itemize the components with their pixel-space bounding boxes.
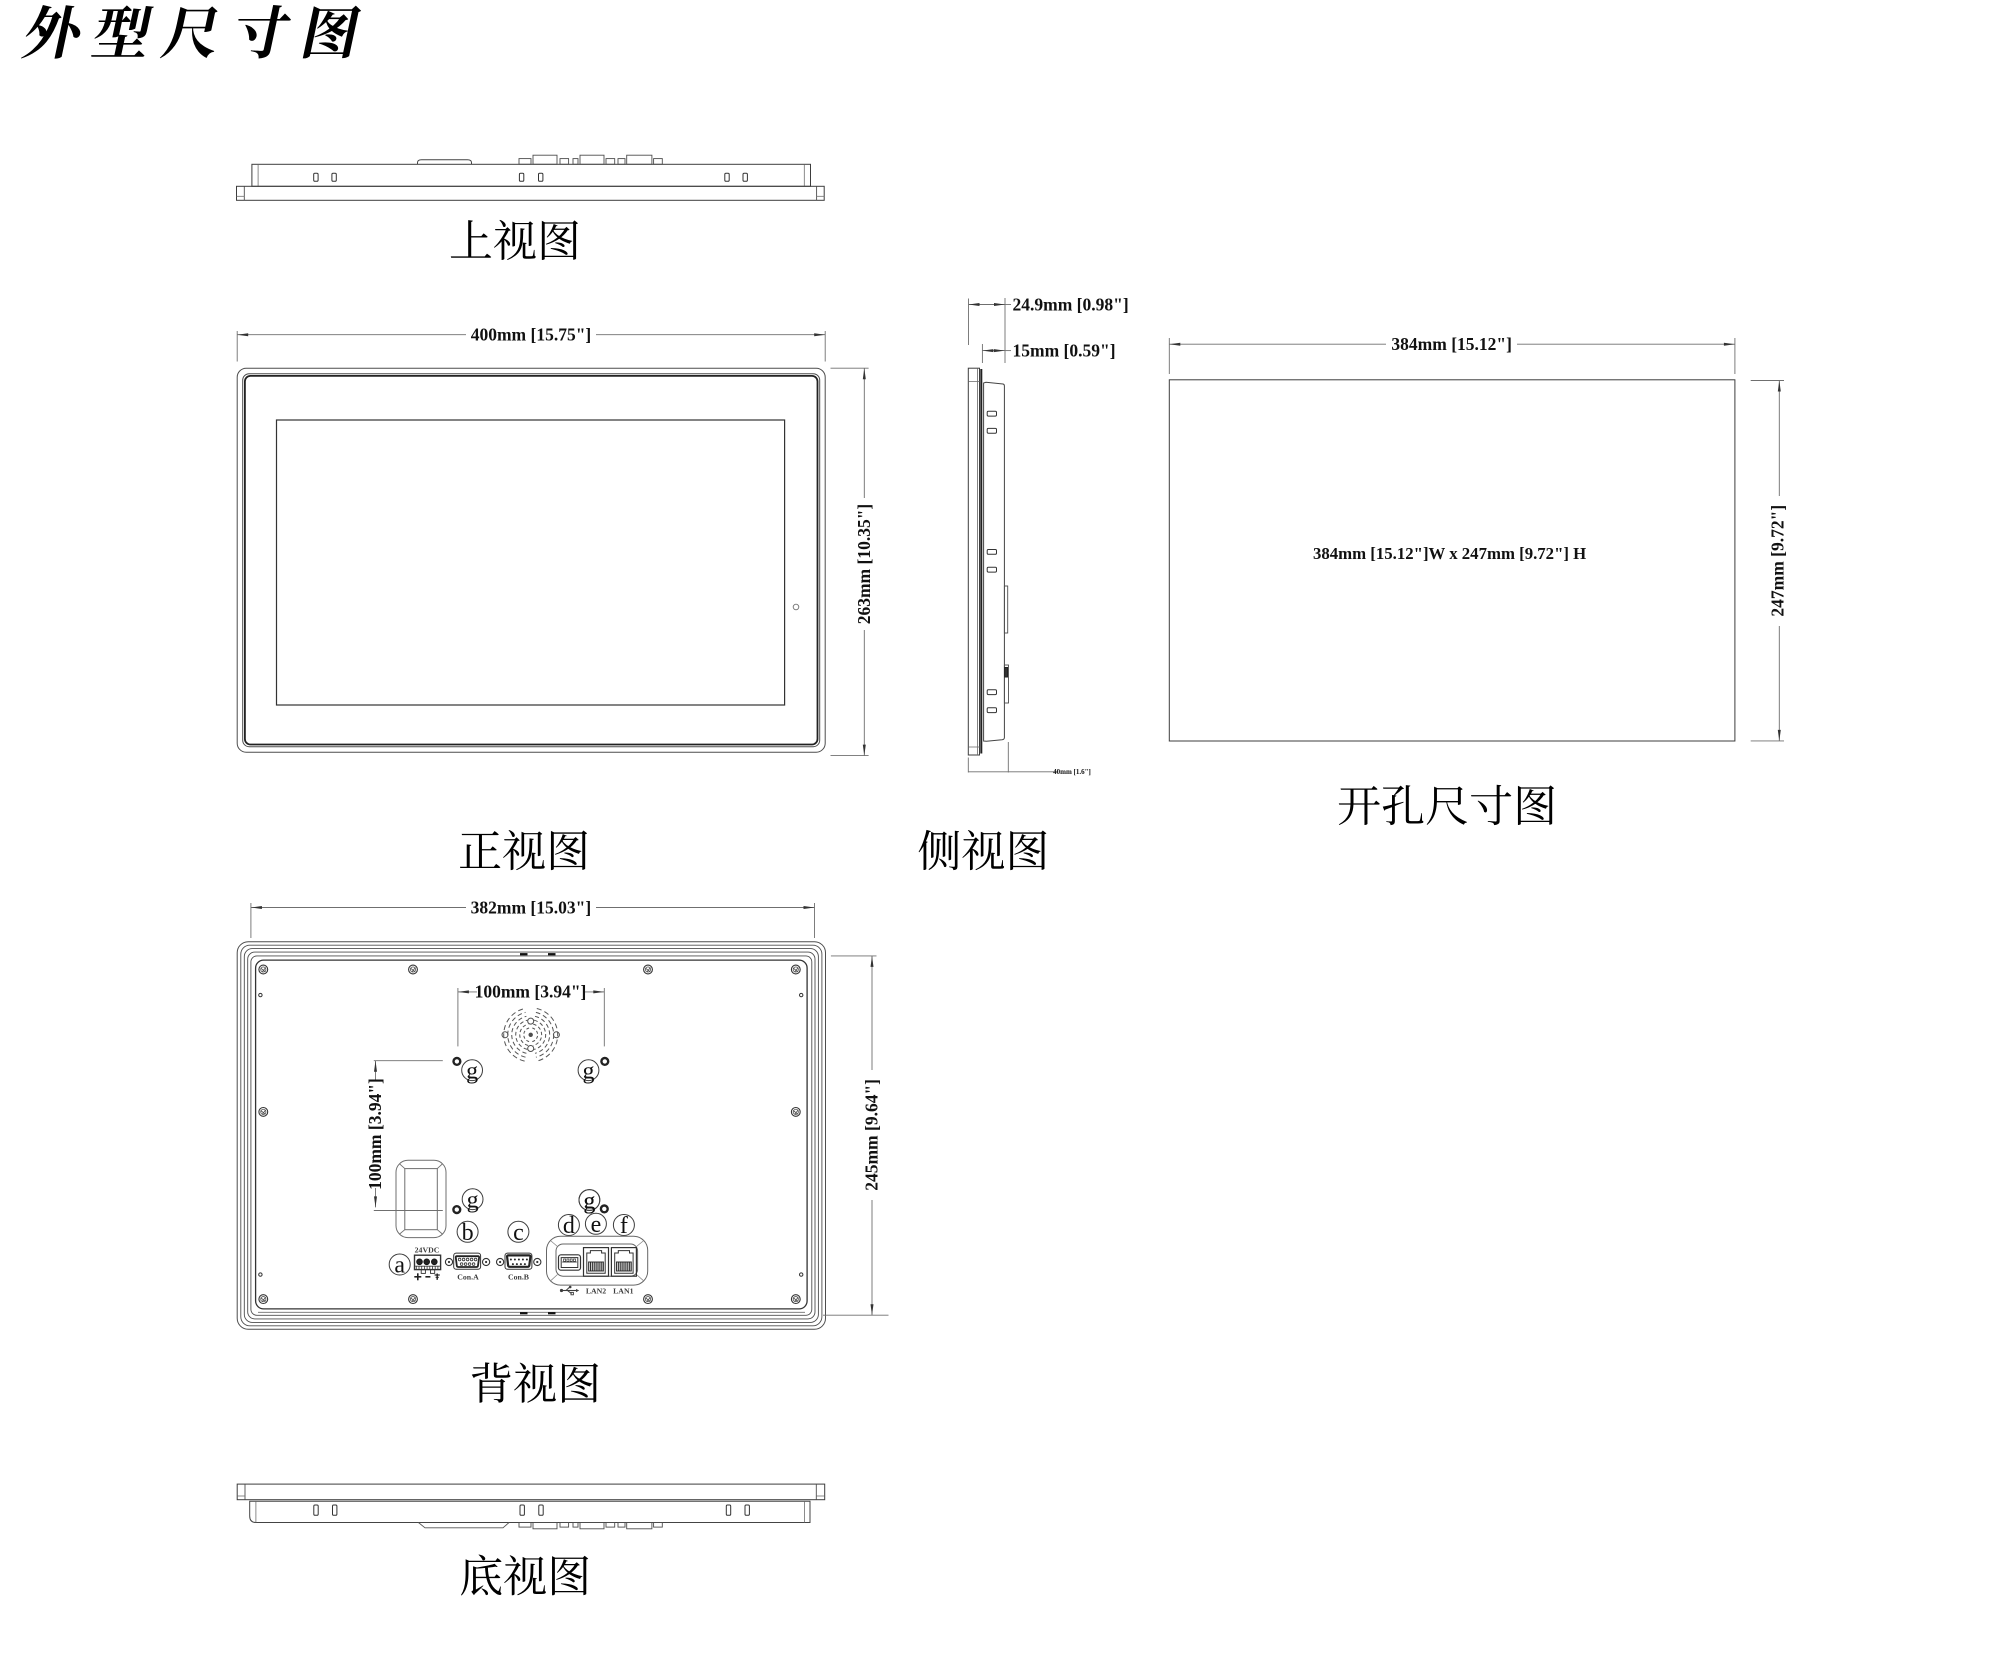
svg-text:263mm [10.35"]: 263mm [10.35"] <box>854 504 874 625</box>
svg-text:Con.B: Con.B <box>508 1273 529 1282</box>
svg-text:382mm [15.03"]: 382mm [15.03"] <box>471 897 592 917</box>
svg-text:384mm [15.12"]W x 247mm [9.72": 384mm [15.12"]W x 247mm [9.72"] H <box>1313 544 1586 563</box>
svg-text:400mm [15.75"]: 400mm [15.75"] <box>471 325 592 345</box>
svg-text:15mm [0.59"]: 15mm [0.59"] <box>1013 340 1116 360</box>
svg-text:f: f <box>620 1213 628 1239</box>
svg-text:Con.A: Con.A <box>457 1273 479 1282</box>
svg-text:100mm [3.94"]: 100mm [3.94"] <box>475 982 587 1002</box>
svg-text:LAN1: LAN1 <box>613 1287 633 1296</box>
svg-text:g: g <box>583 1189 595 1215</box>
svg-text:g: g <box>467 1188 479 1214</box>
svg-text:245mm [9.64"]: 245mm [9.64"] <box>862 1079 882 1191</box>
svg-text:100mm [3.94"]: 100mm [3.94"] <box>365 1078 385 1190</box>
svg-text:c: c <box>513 1220 524 1246</box>
svg-text:40mm [1.6"]: 40mm [1.6"] <box>1053 768 1091 776</box>
svg-text:24VDC: 24VDC <box>415 1246 440 1255</box>
svg-text:d: d <box>563 1213 575 1239</box>
svg-text:e: e <box>591 1212 602 1238</box>
svg-text:24.9mm [0.98"]: 24.9mm [0.98"] <box>1013 294 1129 314</box>
svg-text:247mm [9.72"]: 247mm [9.72"] <box>1767 505 1787 617</box>
svg-text:384mm [15.12"]: 384mm [15.12"] <box>1391 334 1512 354</box>
svg-text:g: g <box>466 1059 478 1085</box>
svg-text:LAN2: LAN2 <box>586 1287 606 1296</box>
svg-text:g: g <box>583 1059 595 1085</box>
svg-text:b: b <box>462 1220 474 1246</box>
svg-text:a: a <box>394 1253 405 1279</box>
